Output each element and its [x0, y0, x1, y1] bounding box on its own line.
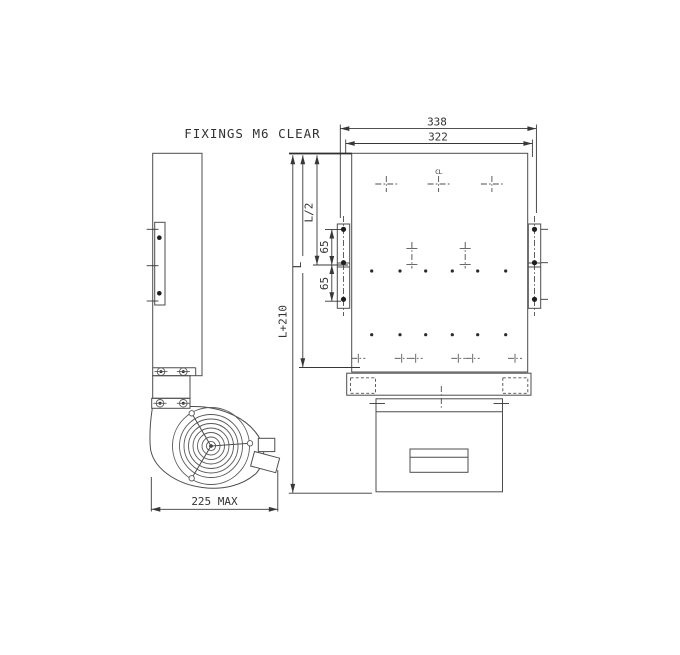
- dim-fixing-width-label: 322: [428, 131, 448, 144]
- dim-hole-pitch-lower-label: 65: [318, 277, 331, 290]
- bracket-bolt: [532, 297, 537, 302]
- flange-bolt: [154, 400, 190, 408]
- nameplate: [410, 449, 468, 472]
- technical-drawing: CL: [0, 0, 680, 655]
- bracket-bolt: [532, 227, 537, 232]
- hole-center-mark: [351, 354, 522, 363]
- dim-length-label: L: [291, 261, 304, 268]
- bracket-bolt: [341, 297, 346, 302]
- discharge-spout: [251, 452, 280, 473]
- dim-hole-pitch-upper-label: 65: [318, 240, 331, 253]
- dim-hole-pitch: 65 65: [313, 230, 348, 302]
- outlet-box: [370, 386, 510, 492]
- side-view: [147, 153, 280, 488]
- centerline-label: CL: [435, 168, 442, 176]
- mounting-bracket-right: [528, 216, 548, 316]
- hole-center-mark: [406, 242, 470, 269]
- drawing-sheet: CL: [0, 0, 680, 655]
- dim-depth-max-label: 225 MAX: [191, 495, 238, 508]
- dim-overall-length: L+210: [277, 155, 373, 493]
- side-bracket-bolt: [157, 291, 162, 296]
- bottom-flange: [347, 373, 531, 395]
- motor-terminal-box: [258, 438, 275, 451]
- dim-half-length: L/2: [303, 155, 320, 265]
- flange-bolt: [155, 368, 190, 376]
- fixing-hole: [370, 269, 507, 336]
- dim-overall-width-label: 338: [427, 116, 447, 129]
- dim-overall-length-label: L+210: [277, 305, 290, 338]
- bracket-bolt: [341, 227, 346, 232]
- hole-center-mark: [375, 176, 503, 192]
- front-panel: [352, 153, 528, 372]
- inlet-duct: [153, 376, 190, 399]
- bracket-bolt: [341, 260, 346, 265]
- side-body: [153, 153, 202, 375]
- dim-half-length-label: L/2: [303, 203, 316, 223]
- front-view: CL: [337, 153, 548, 492]
- bracket-bolt: [532, 260, 537, 265]
- fixings-note: FIXINGS M6 CLEAR: [184, 126, 320, 141]
- side-bracket-bolt: [157, 235, 162, 240]
